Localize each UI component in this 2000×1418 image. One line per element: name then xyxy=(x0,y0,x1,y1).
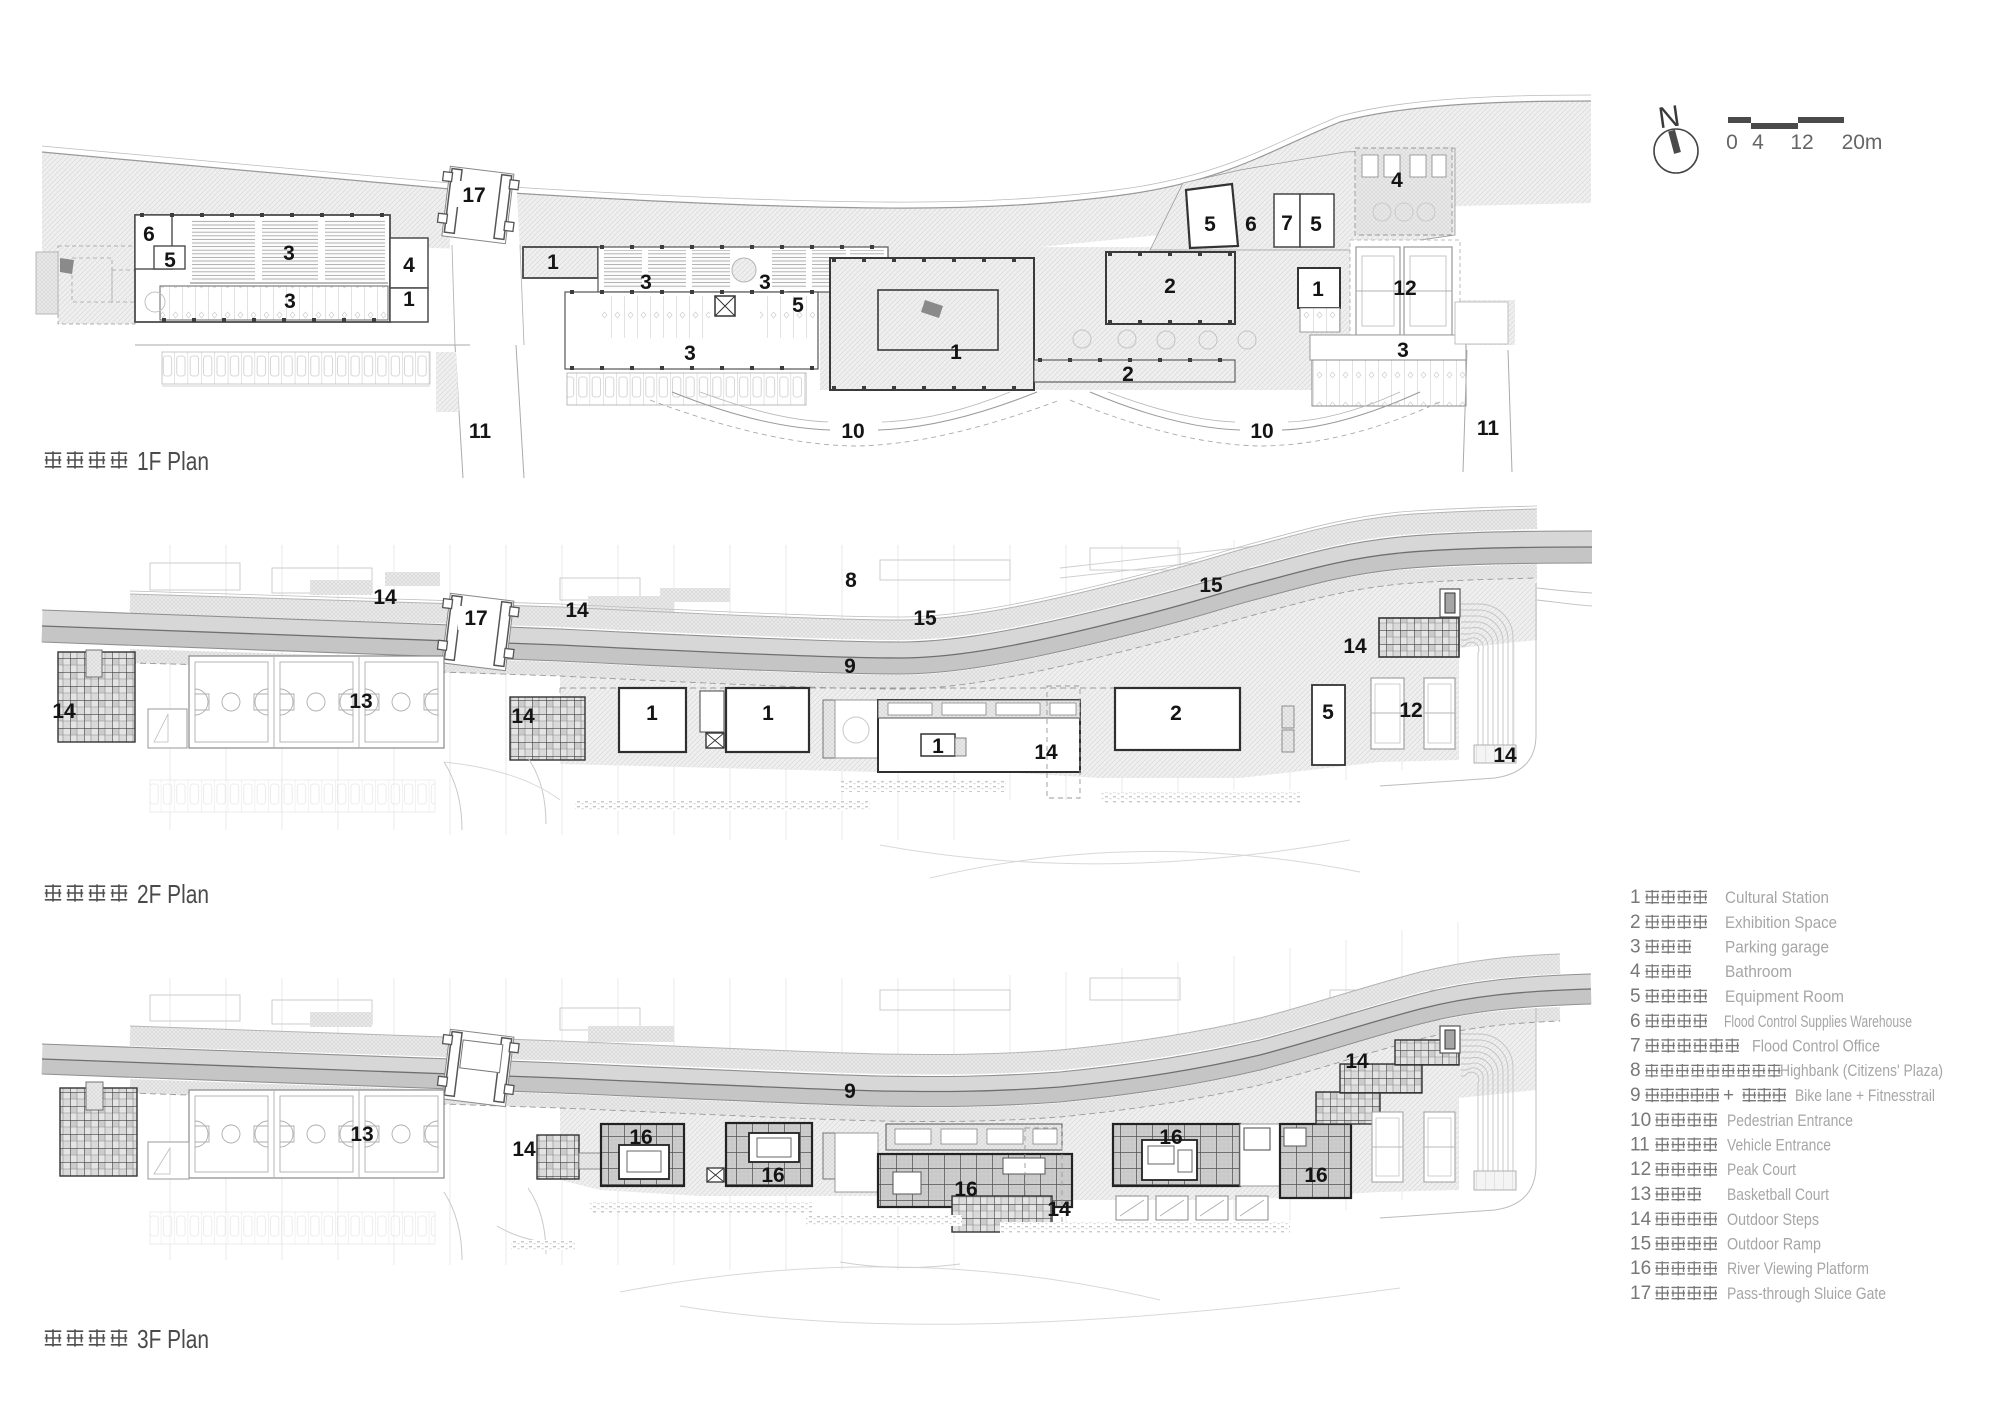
svg-text:Outdoor Ramp: Outdoor Ramp xyxy=(1727,1235,1821,1254)
svg-text:0: 0 xyxy=(1726,131,1738,154)
svg-text:6: 6 xyxy=(143,223,155,246)
svg-text:3: 3 xyxy=(759,271,771,294)
svg-text:14: 14 xyxy=(373,586,397,609)
svg-text:13: 13 xyxy=(350,1123,373,1146)
svg-text:Flood Control Supplies Warehou: Flood Control Supplies Warehouse xyxy=(1724,1012,1912,1031)
svg-text:7: 7 xyxy=(1630,1036,1641,1057)
svg-text:N: N xyxy=(1656,100,1682,136)
svg-text:3: 3 xyxy=(640,271,652,294)
svg-text:14: 14 xyxy=(1034,741,1058,764)
svg-text:2F Plan: 2F Plan xyxy=(137,879,209,909)
svg-text:8: 8 xyxy=(845,569,857,592)
svg-text:Equipment Room: Equipment Room xyxy=(1725,987,1844,1006)
svg-text:Pass-through Sluice Gate: Pass-through Sluice Gate xyxy=(1727,1284,1886,1303)
svg-text:10: 10 xyxy=(1630,1110,1651,1131)
svg-text:Pedestrian Entrance: Pedestrian Entrance xyxy=(1727,1111,1853,1130)
svg-text:16: 16 xyxy=(1630,1258,1651,1279)
svg-text:15: 15 xyxy=(1199,574,1223,597)
svg-text:1: 1 xyxy=(403,288,415,311)
svg-text:1F Plan: 1F Plan xyxy=(137,446,209,476)
svg-text:15: 15 xyxy=(1630,1234,1651,1255)
svg-text:2: 2 xyxy=(1630,912,1641,933)
svg-text:5: 5 xyxy=(792,294,804,317)
svg-text:17: 17 xyxy=(464,607,487,630)
svg-text:14: 14 xyxy=(565,599,589,622)
svg-text:2: 2 xyxy=(1170,702,1182,725)
svg-text:14: 14 xyxy=(1047,1198,1071,1221)
svg-text:13: 13 xyxy=(1630,1184,1651,1205)
svg-text:14: 14 xyxy=(1493,744,1517,767)
svg-text:10: 10 xyxy=(1250,420,1273,443)
svg-text:Highbank (Citizens' Plaza): Highbank (Citizens' Plaza) xyxy=(1780,1061,1943,1080)
svg-text:10: 10 xyxy=(841,420,864,443)
svg-text:14: 14 xyxy=(1343,635,1367,658)
svg-text:River Viewing Platform: River Viewing Platform xyxy=(1727,1259,1869,1278)
svg-text:16: 16 xyxy=(1159,1126,1182,1149)
svg-text:6: 6 xyxy=(1630,1011,1641,1032)
svg-text:9: 9 xyxy=(844,1080,856,1103)
svg-text:16: 16 xyxy=(1304,1164,1327,1187)
svg-text:4: 4 xyxy=(1391,169,1403,192)
svg-text:14: 14 xyxy=(1630,1209,1652,1230)
svg-text:17: 17 xyxy=(462,184,485,207)
svg-text:3F Plan: 3F Plan xyxy=(137,1324,209,1354)
svg-text:5: 5 xyxy=(1310,213,1322,236)
svg-text:1: 1 xyxy=(646,702,658,725)
svg-text:12: 12 xyxy=(1399,699,1422,722)
svg-text:Exhibition Space: Exhibition Space xyxy=(1725,913,1837,932)
svg-text:17: 17 xyxy=(1630,1283,1651,1304)
svg-text:Bike lane + Fitnesstrail: Bike lane + Fitnesstrail xyxy=(1795,1086,1935,1105)
svg-text:Parking garage: Parking garage xyxy=(1725,938,1829,957)
svg-text:14: 14 xyxy=(52,700,76,723)
svg-text:3: 3 xyxy=(283,242,295,265)
svg-text:14: 14 xyxy=(512,1138,536,1161)
svg-text:13: 13 xyxy=(349,690,372,713)
svg-text:3: 3 xyxy=(284,290,296,313)
svg-text:4: 4 xyxy=(1630,961,1641,982)
svg-text:11: 11 xyxy=(1630,1135,1650,1156)
svg-text:3: 3 xyxy=(684,342,696,365)
svg-text:16: 16 xyxy=(629,1126,652,1149)
svg-text:1: 1 xyxy=(950,341,962,364)
svg-text:+: + xyxy=(1723,1085,1734,1106)
svg-text:8: 8 xyxy=(1630,1060,1641,1081)
svg-text:1: 1 xyxy=(1630,887,1641,908)
svg-text:1: 1 xyxy=(932,735,944,758)
svg-text:12: 12 xyxy=(1790,131,1813,154)
svg-text:1: 1 xyxy=(1312,278,1324,301)
svg-text:2: 2 xyxy=(1122,363,1134,386)
svg-text:12: 12 xyxy=(1393,277,1416,300)
svg-text:12: 12 xyxy=(1630,1159,1651,1180)
svg-text:Basketball Court: Basketball Court xyxy=(1727,1185,1829,1204)
svg-text:Vehicle Entrance: Vehicle Entrance xyxy=(1727,1136,1831,1155)
svg-text:3: 3 xyxy=(1397,339,1409,362)
svg-text:16: 16 xyxy=(954,1178,977,1201)
svg-text:16: 16 xyxy=(761,1164,784,1187)
svg-text:4: 4 xyxy=(1752,131,1764,154)
svg-text:5: 5 xyxy=(1630,986,1641,1007)
svg-text:20m: 20m xyxy=(1842,131,1883,154)
svg-text:2: 2 xyxy=(1164,275,1176,298)
svg-text:11: 11 xyxy=(469,420,492,443)
svg-text:1: 1 xyxy=(547,251,559,274)
svg-text:Flood Control Office: Flood Control Office xyxy=(1752,1037,1880,1056)
svg-text:15: 15 xyxy=(913,607,937,630)
svg-text:6: 6 xyxy=(1245,213,1257,236)
svg-text:3: 3 xyxy=(1630,937,1641,958)
svg-text:9: 9 xyxy=(844,655,856,678)
svg-text:1: 1 xyxy=(762,702,774,725)
svg-text:Peak Court: Peak Court xyxy=(1727,1160,1796,1179)
svg-text:14: 14 xyxy=(511,705,535,728)
svg-text:5: 5 xyxy=(1204,213,1216,236)
svg-text:14: 14 xyxy=(1345,1050,1369,1073)
svg-text:7: 7 xyxy=(1281,212,1293,235)
svg-text:4: 4 xyxy=(403,254,415,277)
svg-text:5: 5 xyxy=(164,249,176,272)
svg-text:11: 11 xyxy=(1477,417,1500,440)
svg-text:9: 9 xyxy=(1630,1085,1641,1106)
svg-text:Cultural Station: Cultural Station xyxy=(1725,888,1829,907)
svg-text:Outdoor Steps: Outdoor Steps xyxy=(1727,1210,1819,1229)
svg-text:5: 5 xyxy=(1322,701,1334,724)
svg-text:Bathroom: Bathroom xyxy=(1725,962,1792,981)
